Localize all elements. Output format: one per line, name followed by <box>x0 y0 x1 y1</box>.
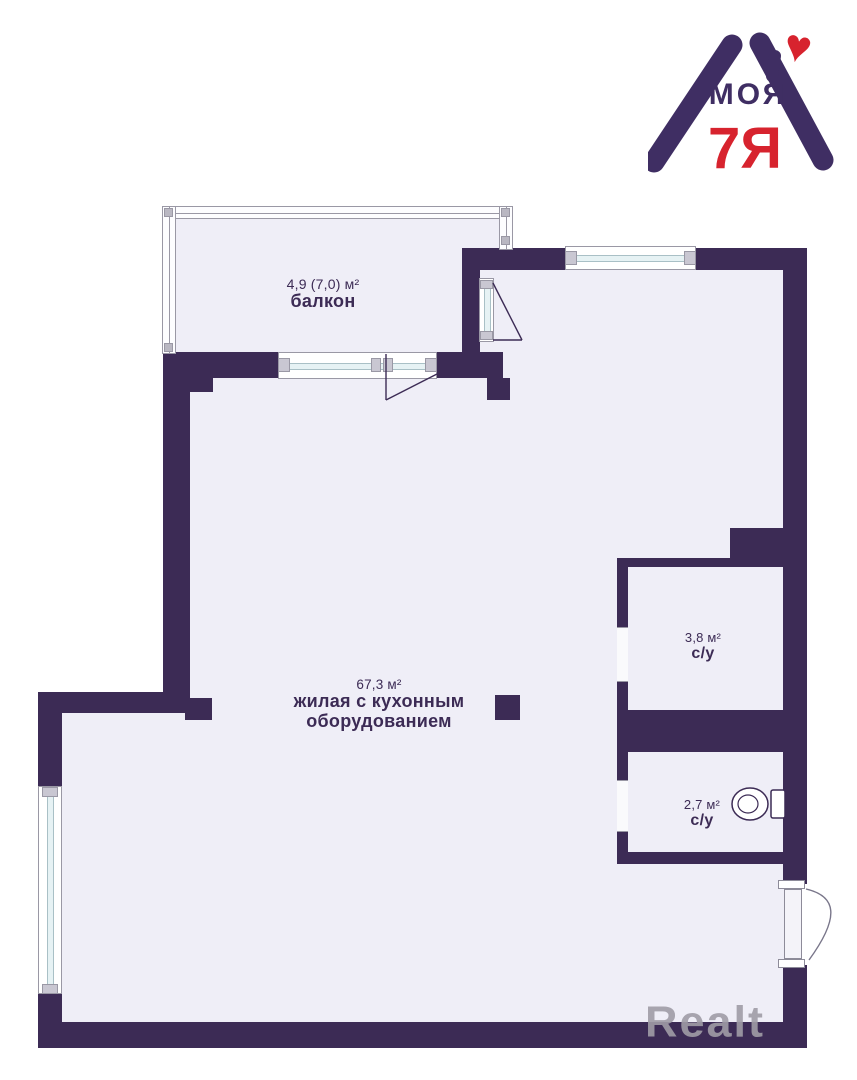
wall-bathroom-top <box>617 558 807 567</box>
window-top <box>565 246 696 270</box>
entrance-door-arc-icon <box>806 889 831 960</box>
column <box>495 695 520 720</box>
room-name: балкон <box>287 292 360 312</box>
window-balcony-sill <box>278 352 437 379</box>
balcony-glazing-left <box>162 206 176 354</box>
wall-right-middle <box>783 560 807 884</box>
brand-logo: ♥ МОЯ 7Я <box>648 18 848 188</box>
floor-plan-page: 4,9 (7,0) м² балкон 67,3 м² жилая с кухо… <box>0 0 857 1080</box>
window-mullion <box>684 251 696 265</box>
window-mullion <box>383 358 393 372</box>
wall-right-upper <box>783 248 807 560</box>
glazing-corner <box>164 208 173 217</box>
window-mullion <box>42 984 58 994</box>
room-label-living: 67,3 м² жилая с кухонным оборудованием <box>267 677 492 732</box>
room-label-bathroom-top: 3,8 м² с/у <box>685 630 721 663</box>
room-area: 3,8 м² <box>685 630 721 645</box>
room-label-bathroom-bottom: 2,7 м² с/у <box>684 797 720 830</box>
wall-bathroom-bottom <box>617 852 807 864</box>
room-label-balcony: 4,9 (7,0) м² балкон <box>287 276 360 312</box>
wall-right-lower <box>783 965 807 1048</box>
wall-step-right <box>730 528 783 560</box>
wall-left-upper <box>163 352 190 702</box>
logo-text-bottom: 7Я <box>708 116 782 181</box>
wall-bathroom-left-2 <box>617 682 628 710</box>
wall-step-corner <box>185 698 212 720</box>
window-mullion <box>42 787 58 797</box>
door-opening-bathroom-top <box>617 627 628 682</box>
wall-step-left <box>190 378 213 392</box>
balcony-glazing-top <box>162 206 513 219</box>
window-mullion <box>371 358 381 372</box>
door-opening-bathroom-bottom <box>617 780 628 832</box>
room-name: с/у <box>685 645 721 663</box>
room-area: 2,7 м² <box>684 797 720 812</box>
realt-watermark: Realt <box>645 997 765 1047</box>
wall-bathroom-middle <box>617 710 783 752</box>
glazing-corner <box>501 208 510 217</box>
entrance-door-jamb <box>778 880 805 889</box>
heart-icon: ♥ <box>779 18 817 74</box>
room-name: жилая с кухонным оборудованием <box>267 692 492 732</box>
logo-text-top: МОЯ <box>709 78 788 111</box>
glazing-corner <box>164 343 173 352</box>
room-area: 67,3 м² <box>267 677 492 692</box>
wall-step-mid <box>487 378 510 400</box>
window-left <box>38 786 62 994</box>
window-mullion <box>425 358 437 372</box>
wall-bathroom-left-1 <box>617 558 628 627</box>
wall-bathroom-left-3 <box>617 752 628 780</box>
window-mullion <box>480 280 493 289</box>
wall-top-left <box>462 248 565 270</box>
wall-balcony-sill-right <box>437 352 503 378</box>
wall-balcony-door-pier <box>462 270 480 352</box>
window-mullion <box>278 358 290 372</box>
room-name: с/у <box>684 812 720 830</box>
entrance-door-leaf <box>784 889 802 959</box>
entrance-door-jamb <box>778 959 805 968</box>
room-area: 4,9 (7,0) м² <box>287 276 360 292</box>
window-mullion <box>565 251 577 265</box>
glazing-corner <box>501 236 510 245</box>
window-mullion <box>480 331 493 340</box>
